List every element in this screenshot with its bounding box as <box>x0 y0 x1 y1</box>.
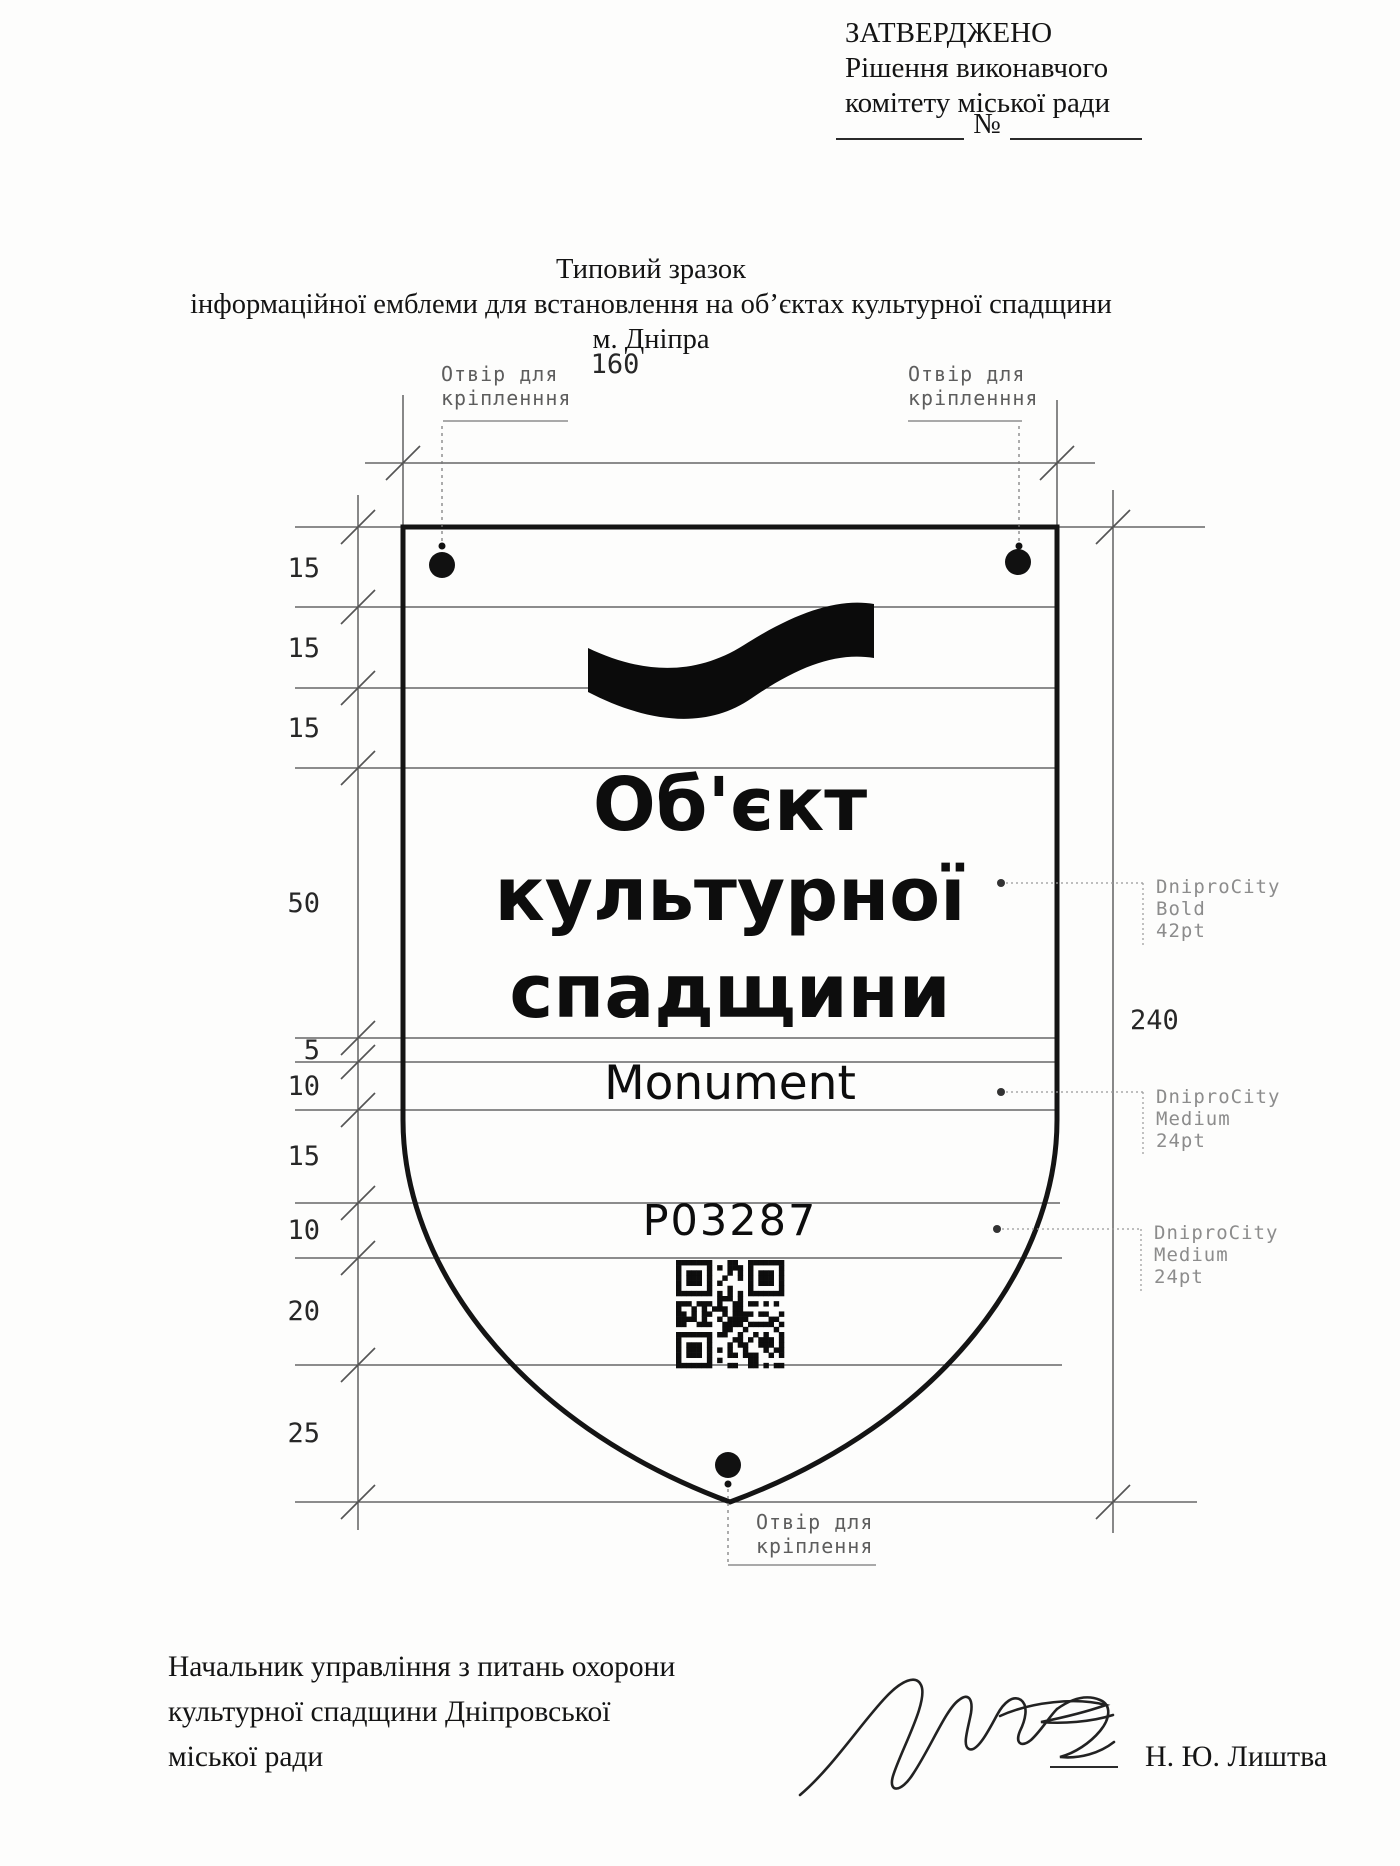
dimension-left-9: 25 <box>235 1418 320 1449</box>
dimension-left-1: 15 <box>235 633 320 664</box>
signature-underline <box>1050 1766 1118 1768</box>
font-note-leader-dots <box>993 879 1005 1233</box>
approval-line-2: Рішення виконавчого <box>845 51 1110 86</box>
font-note-code: DniproCity Medium 24pt <box>1154 1222 1278 1288</box>
emblem-title-line-2: культурної <box>403 858 1057 932</box>
official-title-line-3: міської ради <box>168 1735 808 1780</box>
number-blank-line-left <box>836 138 964 140</box>
decision-number-row: № <box>836 106 1142 142</box>
dimension-height: 240 <box>1130 1005 1210 1036</box>
qr-code <box>676 1260 784 1368</box>
hole-label-top-right: Отвір для кріпленння <box>908 362 1038 410</box>
hole-label-bottom: Отвір для кріплення <box>756 1510 873 1558</box>
mounting-hole-top-right <box>1005 549 1031 575</box>
document-page: ЗАТВЕРДЖЕНО Рішення виконавчого комітету… <box>0 0 1400 1866</box>
dnipro-wave-icon <box>588 603 874 719</box>
dimension-width: 160 <box>560 349 670 380</box>
number-blank-line-right <box>1010 138 1142 140</box>
emblem-title-line-1: Об'єкт <box>403 768 1057 842</box>
emblem-title-line-3: спадщини <box>403 955 1057 1029</box>
title-line-1: Типовий зразок <box>51 252 1251 287</box>
hole-label-top-left: Отвір для кріпленння <box>441 362 571 410</box>
font-note-title: DniproCity Bold 42pt <box>1156 876 1280 942</box>
dimension-left-2: 15 <box>235 713 320 744</box>
official-title-line-1: Начальник управління з питань охорони <box>168 1645 808 1690</box>
document-title: Типовий зразок інформаційної емблеми для… <box>51 252 1251 357</box>
emblem-subtitle: Monument <box>403 1060 1057 1107</box>
font-note-subtitle: DniproCity Medium 24pt <box>1156 1086 1280 1152</box>
dimension-left-7: 10 <box>235 1215 320 1246</box>
title-line-2: інформаційної емблеми для встановлення н… <box>51 287 1251 322</box>
mounting-hole-top-left <box>429 552 455 578</box>
dimension-left-8: 20 <box>235 1296 320 1327</box>
signatory-name: Н. Ю. Лиштва <box>1145 1740 1327 1774</box>
dimension-left-0: 15 <box>235 553 320 584</box>
emblem-code: P03287 <box>403 1200 1057 1243</box>
mounting-hole-bottom <box>715 1452 741 1478</box>
dimension-left-5: 10 <box>235 1071 320 1102</box>
dimension-left-3: 50 <box>235 888 320 919</box>
dimension-left-6: 15 <box>235 1141 320 1172</box>
official-title-line-2: культурної спадщини Дніпровської <box>168 1690 808 1735</box>
dimension-left-4: 5 <box>235 1035 320 1066</box>
signature-scribble <box>800 1680 1114 1795</box>
approval-line-1: ЗАТВЕРДЖЕНО <box>845 16 1110 51</box>
number-sign: № <box>964 108 1010 141</box>
official-title-block: Начальник управління з питань охорони ку… <box>168 1645 808 1780</box>
